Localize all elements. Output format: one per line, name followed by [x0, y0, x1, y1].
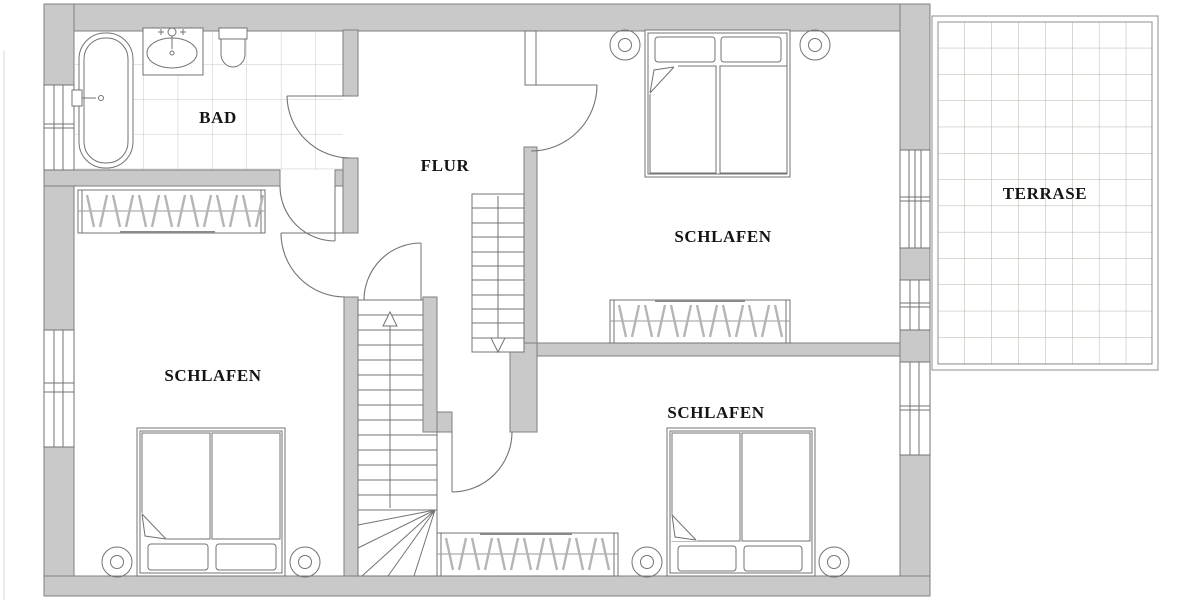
room-label-bedroom-top-right: SCHLAFEN	[674, 227, 771, 247]
wall-top	[44, 4, 930, 31]
room-label-bathroom: BAD	[199, 108, 237, 128]
wall-right-b	[900, 248, 930, 280]
pillow-icon	[148, 544, 208, 570]
bathtub-icon	[72, 33, 133, 168]
door-bedroom-top-right-icon	[531, 85, 597, 151]
partition-wall	[525, 31, 536, 85]
wall-right-d	[900, 455, 930, 576]
room-label-hallway: FLUR	[421, 156, 470, 176]
double-bed-bottom-right	[632, 428, 849, 577]
pillow-icon	[678, 546, 736, 571]
nightstand-icon	[819, 547, 849, 577]
door-staircase-icon	[364, 243, 421, 300]
wall-left-b	[44, 170, 74, 330]
washbasin-icon	[143, 28, 203, 75]
pillow-icon	[744, 546, 802, 571]
room-label-bedroom-bottom-right: SCHLAFEN	[667, 403, 764, 423]
wall-bedrooms-divider	[537, 343, 900, 356]
wall-corridor-east	[510, 343, 537, 432]
window-left-bottom-icon	[44, 330, 74, 447]
stairs-down-icon	[472, 194, 524, 352]
floor-plan-drawing	[0, 0, 1200, 600]
pillow-icon	[721, 37, 781, 62]
wall-left-a	[44, 4, 74, 85]
wall-right-c	[900, 330, 930, 362]
nightstand-icon	[800, 30, 830, 60]
window-right-middle-icon	[900, 280, 930, 330]
pillow-icon	[216, 544, 276, 570]
wall-left-c	[44, 447, 74, 576]
wardrobe-bottom-left	[78, 190, 265, 233]
wall-tab	[335, 170, 343, 186]
room-label-bedroom-bottom-left: SCHLAFEN	[164, 366, 261, 386]
nightstand-icon	[102, 547, 132, 577]
window-right-top-icon	[900, 150, 930, 248]
door-bedroom-left-icon	[281, 233, 345, 297]
wall-bath-south	[44, 170, 280, 186]
pillow-icon	[655, 37, 715, 62]
room-label-terrace: TERRASE	[1003, 184, 1088, 204]
nightstand-icon	[290, 547, 320, 577]
wardrobe-bottom-middle	[437, 533, 618, 576]
window-right-bottom-icon	[900, 362, 930, 455]
window-left-top-icon	[44, 85, 74, 170]
nightstand-icon	[610, 30, 640, 60]
wall-right-a	[900, 4, 930, 150]
double-bed-top-right	[610, 30, 830, 177]
wall-flur-west-top	[343, 30, 358, 96]
walls-stair-east	[423, 297, 452, 432]
toilet-icon	[219, 28, 247, 67]
double-bed-bottom-left	[102, 428, 320, 577]
wall-stair-west	[344, 297, 358, 576]
wall-flur-west-mid	[343, 158, 358, 233]
nightstand-icon	[632, 547, 662, 577]
wall-flur-east	[524, 147, 537, 343]
wardrobe-top-right	[610, 300, 790, 343]
door-bedroom-bottom-right-icon	[452, 432, 512, 492]
floor-plan: BAD FLUR SCHLAFEN SCHLAFEN SCHLAFEN TERR…	[0, 0, 1200, 600]
wall-bottom	[44, 576, 930, 596]
